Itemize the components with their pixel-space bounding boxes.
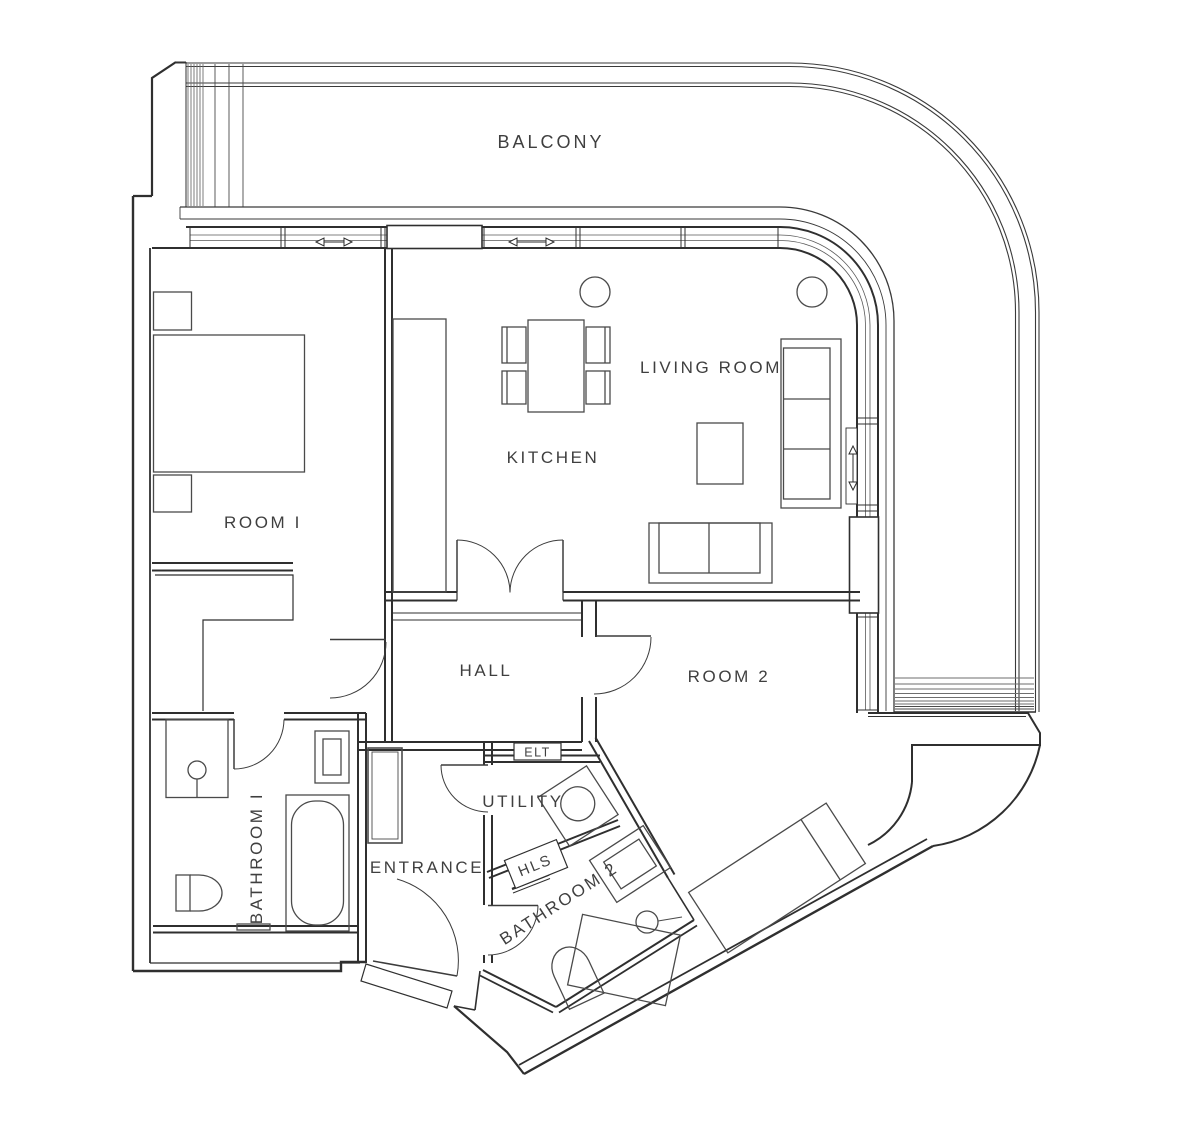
room2-door: [594, 636, 651, 694]
entrance-closet: [368, 748, 402, 843]
floor-plan: BALCONY ROOM I KITCHEN LIVING ROOM HALL …: [0, 0, 1188, 1122]
entrance-label: ENTRANCE: [370, 858, 484, 877]
balcony-divider-hatch-left: [188, 64, 243, 207]
bathroom1-cabinet: [315, 731, 349, 783]
toilet-bathroom1: [176, 875, 222, 911]
ceiling-light-living: [797, 277, 827, 307]
bed-room2: [689, 803, 866, 953]
room2-label: ROOM 2: [688, 667, 771, 686]
vanity-sink: [166, 720, 228, 798]
nightstand-2: [154, 475, 192, 512]
sliding-panel: [846, 428, 857, 504]
utility-door: [441, 765, 488, 812]
nightstand-1: [154, 292, 192, 330]
bathtub: [286, 795, 349, 931]
closet-nook: [155, 575, 293, 711]
balcony-label: BALCONY: [497, 132, 604, 152]
entrance-door: [373, 879, 458, 976]
bed-room1: [154, 335, 305, 472]
exterior-walls: [133, 62, 1040, 1074]
living-room-label: LIVING ROOM: [640, 358, 782, 377]
coffee-table: [697, 423, 743, 484]
utility-label: UTILITY: [482, 792, 564, 811]
room-labels: BALCONY ROOM I KITCHEN LIVING ROOM HALL …: [224, 132, 782, 949]
elt-label: ELT: [524, 746, 551, 760]
entrance-threshold: [361, 964, 452, 1008]
hall-label: HALL: [460, 661, 513, 680]
wall-pier-east: [850, 517, 879, 613]
shower: [568, 911, 682, 1006]
dining-table-set: [502, 320, 610, 412]
sofa-3-seat: [781, 339, 841, 508]
kitchen-counter: [393, 319, 446, 592]
window-wall: [152, 226, 879, 714]
dressing-door: [330, 640, 386, 699]
kitchen-label: KITCHEN: [507, 448, 600, 467]
balcony-divider-hatch-bottom: [894, 678, 1036, 712]
bathroom1-door: [234, 719, 284, 769]
bathroom1-label: BATHROOM I: [247, 792, 266, 924]
sofa-2-seat: [649, 523, 772, 583]
balcony-railing: [176, 63, 1039, 712]
kitchen-double-door: [457, 540, 563, 593]
ceiling-light-kitchen: [580, 277, 610, 307]
room1-label: ROOM I: [224, 513, 302, 532]
wall-pier-north: [387, 226, 482, 249]
doors: [234, 540, 651, 976]
